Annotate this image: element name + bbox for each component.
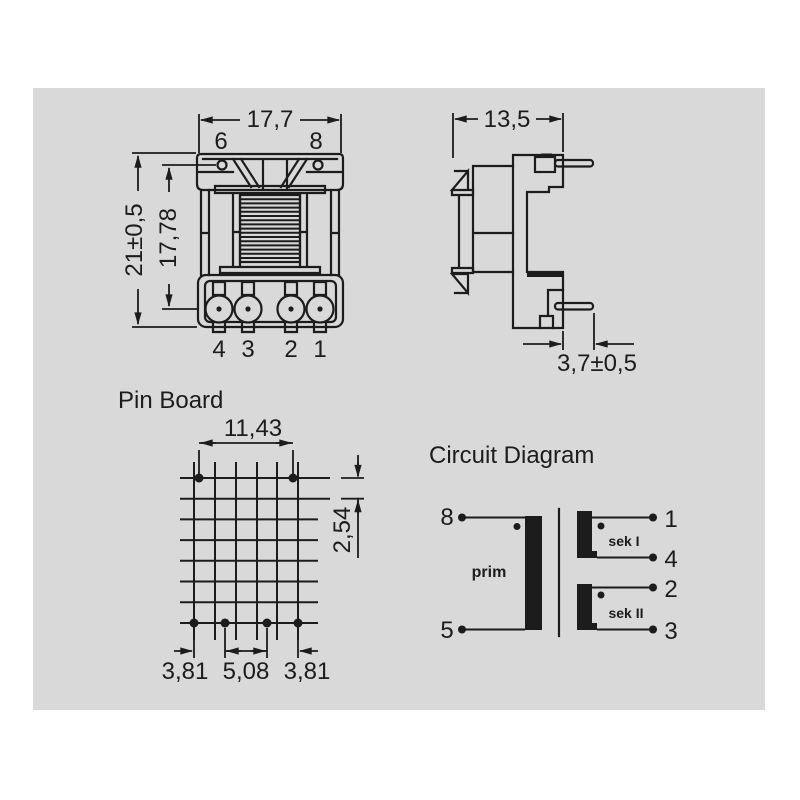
front-label-pin8: 8: [309, 128, 322, 155]
circuit-sec1-polarity-dot: [598, 523, 605, 530]
circuit-pin4-terminal: [649, 554, 657, 562]
pin-board-dim-left-text: 3,81: [162, 658, 209, 685]
circuit-pin1-terminal: [649, 514, 657, 522]
circuit-primary-polarity-dot: [514, 523, 521, 530]
circuit-pin2-terminal: [649, 584, 657, 592]
front-dim-pinspan-text: 17,78: [155, 208, 182, 268]
pin-board-title: Pin Board: [118, 387, 223, 414]
pin-hole-bottom-2: [221, 619, 230, 628]
side-dim-pin-offset-text: 3,7±0,5: [557, 350, 637, 377]
circuit-pin3-terminal: [649, 626, 657, 634]
circuit-sec1-bar: [577, 511, 592, 558]
pin-hole-bottom-1: [190, 619, 199, 628]
front-winding-turns: [240, 199, 300, 258]
circuit-pin2-label: 2: [664, 576, 677, 603]
circuit-sec2-polarity-dot: [598, 592, 605, 599]
circuit-pin3-label: 3: [664, 618, 677, 645]
transformer-technical-drawing: 6 8 4 3 2 1 17,7 21±0,5 17,78: [0, 0, 800, 800]
pin-board-dim-right-text: 3,81: [284, 658, 331, 685]
circuit-pin1-label: 1: [664, 506, 677, 533]
front-label-pin4: 4: [212, 336, 225, 363]
circuit-pin5-label: 5: [440, 617, 453, 644]
circuit-sec2-label: sek II: [608, 605, 643, 621]
circuit-diagram-title: Circuit Diagram: [429, 442, 594, 469]
front-label-pin3: 3: [241, 336, 254, 363]
pin-hole-bottom-4: [294, 619, 303, 628]
datasheet-page: 6 8 4 3 2 1 17,7 21±0,5 17,78: [0, 0, 800, 800]
pin-board-dim-center-text: 5,08: [223, 658, 270, 685]
front-label-pin2: 2: [284, 336, 297, 363]
circuit-pin4-label: 4: [664, 546, 677, 573]
front-label-pin1: 1: [313, 336, 326, 363]
circuit-primary-label: prim: [472, 564, 507, 581]
circuit-primary-bar: [525, 516, 542, 630]
circuit-pin8-label: 8: [440, 504, 453, 531]
pin-hole-bottom-3: [263, 619, 272, 628]
pin-board-dim-topspan-text: 11,43: [224, 415, 282, 442]
side-dim-width-text: 13,5: [484, 106, 531, 133]
front-label-pin6: 6: [214, 128, 227, 155]
pin-board-dim-pitch-text: 2,54: [329, 507, 356, 554]
front-dim-width-text: 17,7: [247, 106, 294, 133]
circuit-sec1-label: sek I: [608, 533, 639, 549]
front-dim-height-text: 21±0,5: [121, 203, 148, 276]
